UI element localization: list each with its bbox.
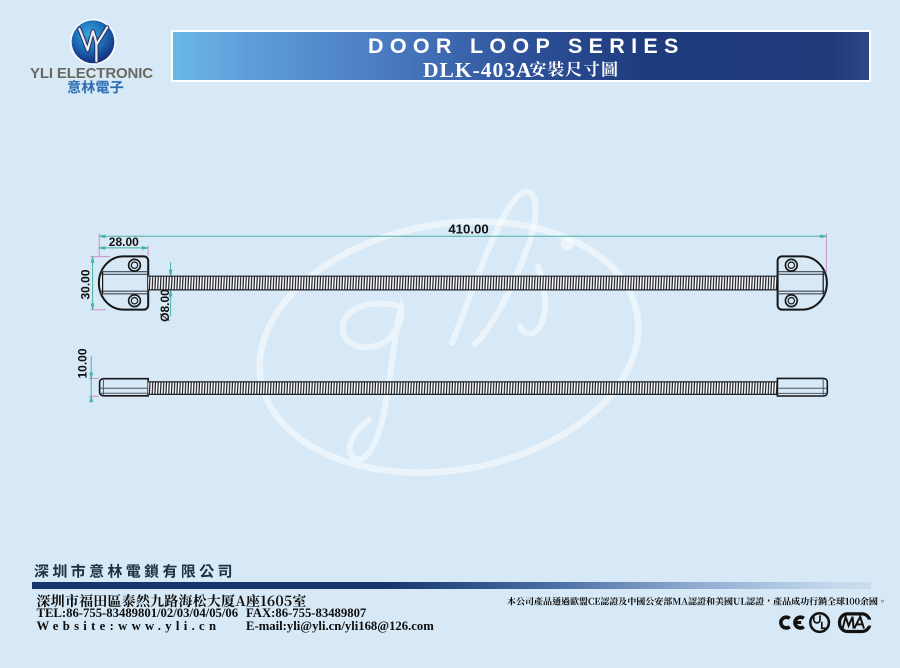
svg-text:410.00: 410.00 <box>448 221 488 236</box>
svg-text:Ø8.00: Ø8.00 <box>158 289 172 322</box>
svg-text:10.00: 10.00 <box>76 348 90 378</box>
svg-text:30.00: 30.00 <box>79 269 93 299</box>
svg-text:28.00: 28.00 <box>109 235 139 249</box>
